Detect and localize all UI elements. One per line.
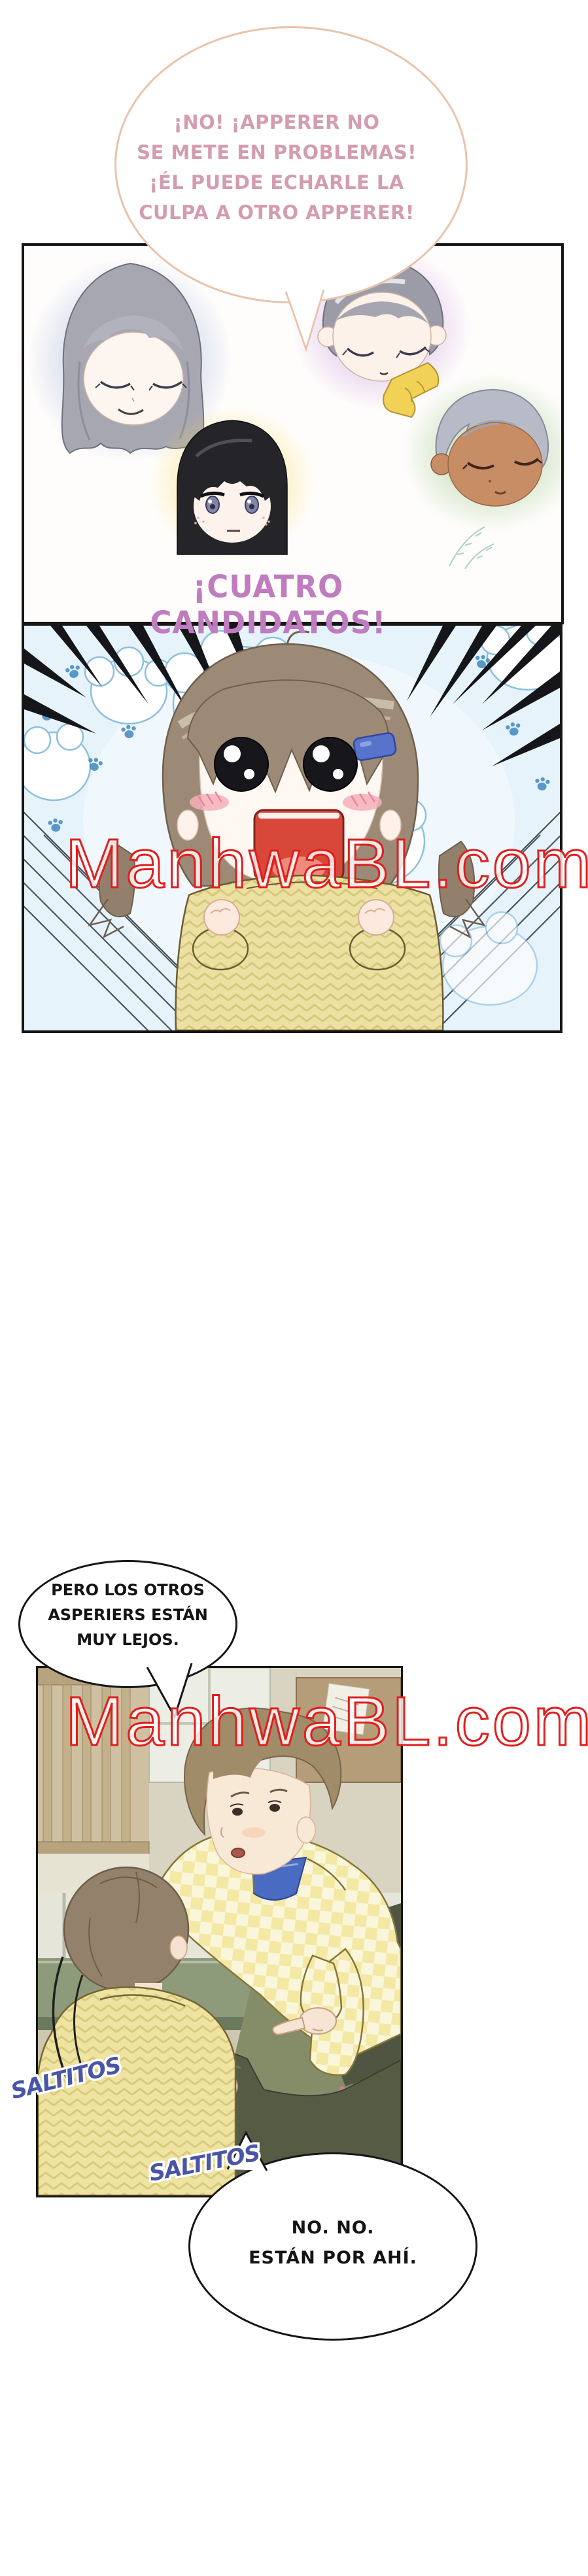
child-head [64,1867,188,1991]
candidate-black-bob [148,405,316,562]
man-ear [297,1817,315,1843]
speech-line: CULPA A OTRO APPERER! [102,197,451,228]
child-ear [170,1936,187,1959]
sfx-text: SALTITOS [9,2052,124,2105]
speech-line: ¡NO! ¡APPERER NO [102,107,451,137]
speech-line: ASPERIERS ESTÁN [20,1602,235,1627]
speech-bubble-top: ¡NO! ¡APPERER NO SE METE EN PROBLEMAS! ¡… [114,26,468,303]
speech-line: ¡ÉL PUEDE ECHARLE LA [102,167,451,197]
speech-line: MUY LEJOS. [20,1627,235,1652]
watermark-manhwabl: ManhwaBL.com [65,1687,588,1756]
speech-bubble-middle-text: PERO LOS OTROS ASPERIERS ESTÁN MUY LEJOS… [20,1578,235,1652]
man-mouth [232,1848,245,1857]
comic-page: ¡CUATRO CANDIDATOS! ¡NO! ¡APPERER NO SE … [0,0,588,2576]
fist-left [204,900,239,935]
speech-bubble-top-tail [278,286,333,354]
speech-line: SE METE EN PROBLEMAS! [102,137,451,167]
fist-right [358,900,394,935]
plant-sprigs [449,527,494,569]
speech-bubble-top-text: ¡NO! ¡APPERER NO SE METE EN PROBLEMAS! ¡… [102,107,451,228]
dog-doodle [24,724,90,800]
watermark-manhwabl: ManhwaBL.com [65,829,588,898]
speech-line: PERO LOS OTROS [20,1578,235,1602]
speech-line: ESTÁN POR AHÍ. [190,2243,476,2273]
speech-bubble-bottom-text: NO. NO. ESTÁN POR AHÍ. [190,2213,476,2273]
caption-cuatro-candidatos: ¡CUATRO CANDIDATOS! [78,569,458,641]
sfx-text: SALTITOS [147,2140,262,2187]
speech-line: NO. NO. [190,2213,476,2243]
speech-bubble-middle: PERO LOS OTROS ASPERIERS ESTÁN MUY LEJOS… [18,1560,237,1688]
